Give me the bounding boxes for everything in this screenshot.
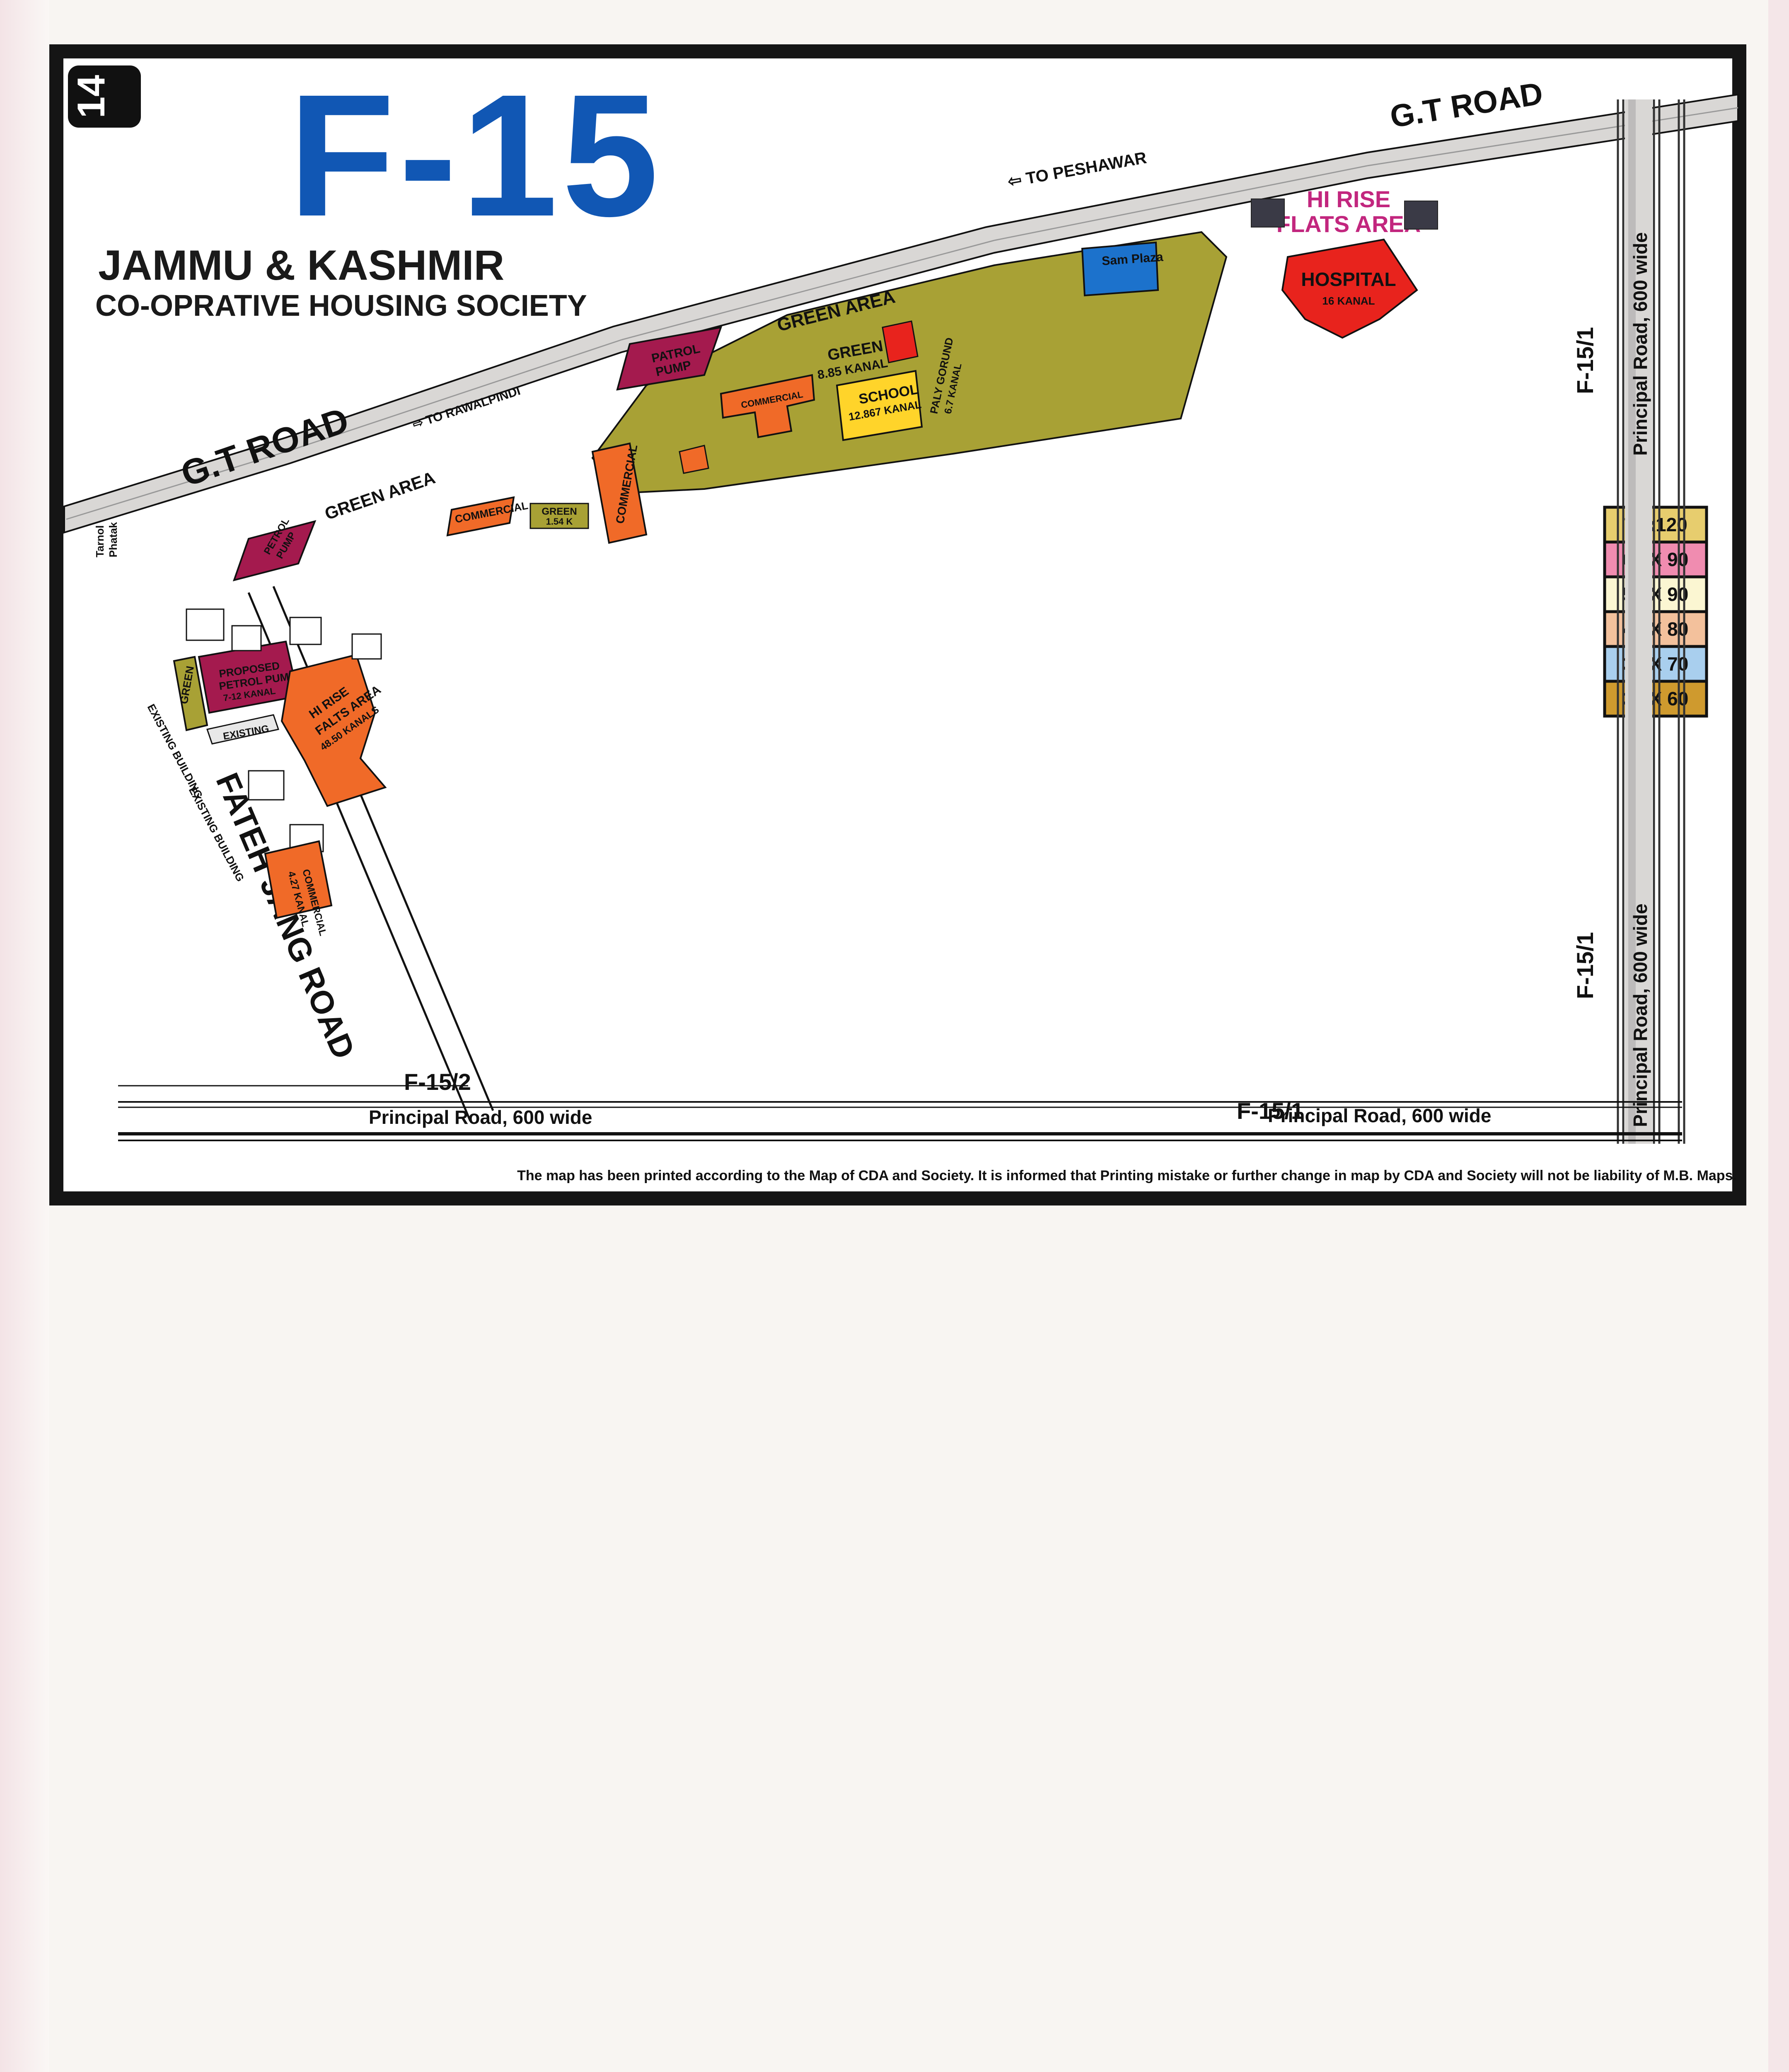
- svg-text:F-15/2: F-15/2: [404, 1069, 471, 1095]
- svg-text:Principal Road, 600 wide: Principal Road, 600 wide: [1629, 903, 1651, 1127]
- svg-text:Principal Road, 600 wide: Principal Road, 600 wide: [369, 1106, 592, 1128]
- svg-text:Phatak: Phatak: [107, 522, 119, 557]
- svg-text:F-15/1: F-15/1: [1572, 932, 1598, 999]
- svg-text:CO-OPRATIVE HOUSING SOCIETY: CO-OPRATIVE HOUSING SOCIETY: [95, 289, 587, 322]
- svg-text:16 KANAL: 16 KANAL: [1322, 295, 1375, 307]
- svg-text:JAMMU & KASHMIR: JAMMU & KASHMIR: [98, 242, 504, 289]
- svg-text:1.54 K: 1.54 K: [546, 516, 573, 527]
- svg-text:F-15/1: F-15/1: [1572, 327, 1598, 394]
- svg-text:Tarnol: Tarnol: [94, 525, 106, 557]
- svg-text:GREEN: GREEN: [542, 506, 577, 517]
- svg-text:Principal Road, 600 wide: Principal Road, 600 wide: [1629, 232, 1651, 455]
- svg-text:FLATS AREA: FLATS AREA: [1276, 211, 1421, 237]
- svg-text:F-15/1: F-15/1: [1237, 1098, 1304, 1124]
- svg-text:The map has been printed accor: The map has been printed according to th…: [517, 1168, 1737, 1184]
- svg-text:HOSPITAL: HOSPITAL: [1301, 269, 1396, 290]
- svg-text:14: 14: [69, 75, 113, 119]
- svg-text:HI RISE: HI RISE: [1307, 186, 1390, 212]
- svg-text:F-15: F-15: [288, 58, 663, 253]
